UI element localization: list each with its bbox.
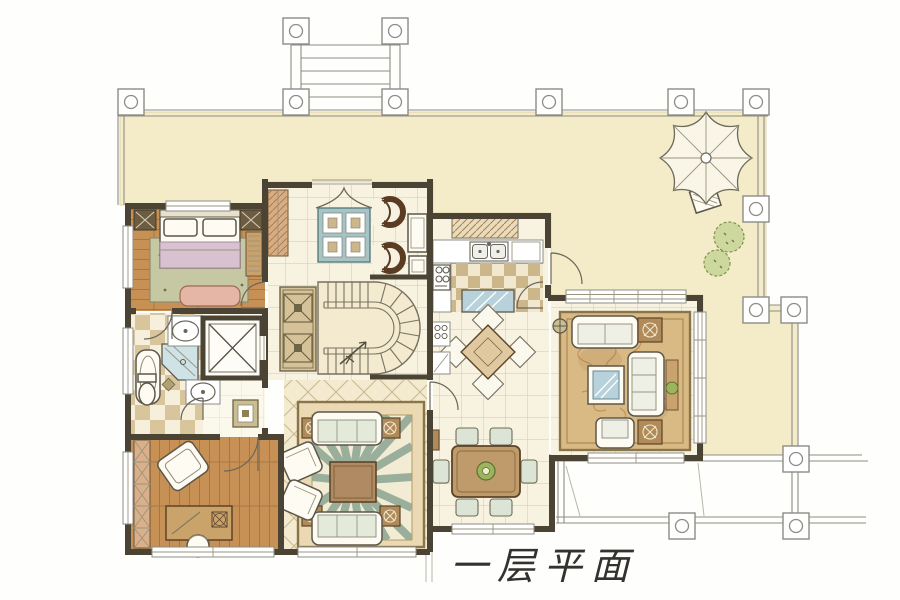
nightstand: [240, 210, 262, 230]
family-room: [278, 402, 424, 547]
stair-runner: [280, 287, 316, 371]
column: [382, 89, 408, 115]
column: [536, 89, 562, 115]
elevator: [203, 318, 262, 378]
column: [743, 89, 769, 115]
window: [566, 290, 686, 303]
elevator-door: [258, 336, 266, 360]
window: [452, 524, 534, 534]
sofa: [312, 412, 382, 445]
bookshelf: [134, 440, 150, 548]
wardrobe: [246, 232, 262, 276]
first-floor-plan: 一层平面: [0, 0, 900, 600]
window: [298, 547, 416, 557]
dining-table: [452, 446, 520, 497]
plan-title: 一层平面: [450, 538, 690, 594]
window: [123, 226, 133, 288]
console-cabinet: [408, 214, 427, 276]
bed-pillow: [203, 219, 236, 236]
column: [783, 513, 809, 539]
column: [743, 297, 769, 323]
bed-bench: [180, 286, 240, 306]
sofa: [312, 512, 382, 545]
barrel-chair: [372, 199, 403, 225]
bedroom: [134, 210, 262, 306]
floor-medallion: [233, 400, 258, 427]
column: [783, 446, 809, 472]
staircase: [318, 282, 420, 374]
plant-icon: [666, 382, 678, 394]
window: [123, 452, 133, 524]
window: [152, 547, 274, 557]
umbrella-icon: [660, 112, 752, 204]
console-table: [666, 360, 678, 410]
floor-plan-drawing: [0, 0, 900, 600]
column: [781, 297, 807, 323]
living-room: [553, 312, 690, 450]
column: [283, 89, 309, 115]
floor-lamp: [553, 319, 567, 333]
bed-pillow: [164, 219, 197, 236]
column: [382, 18, 408, 44]
foyer-closet: [268, 190, 288, 256]
nightstand: [134, 210, 156, 230]
window: [588, 453, 684, 463]
coffee-table: [330, 462, 376, 502]
window: [166, 201, 230, 211]
sofa: [628, 352, 664, 416]
pantry-counter: [452, 216, 518, 238]
barrel-chair: [372, 245, 403, 271]
window: [123, 328, 133, 394]
column: [669, 513, 695, 539]
stove: [433, 265, 450, 290]
column: [118, 89, 144, 115]
coffee-table: [588, 366, 624, 404]
toilet: [138, 374, 156, 405]
column: [283, 18, 309, 44]
sink: [168, 316, 203, 346]
glass-wall: [694, 312, 706, 443]
column: [668, 89, 694, 115]
bed: [160, 210, 240, 268]
column: [743, 196, 769, 222]
armchair: [596, 418, 634, 448]
loveseat: [572, 316, 638, 348]
